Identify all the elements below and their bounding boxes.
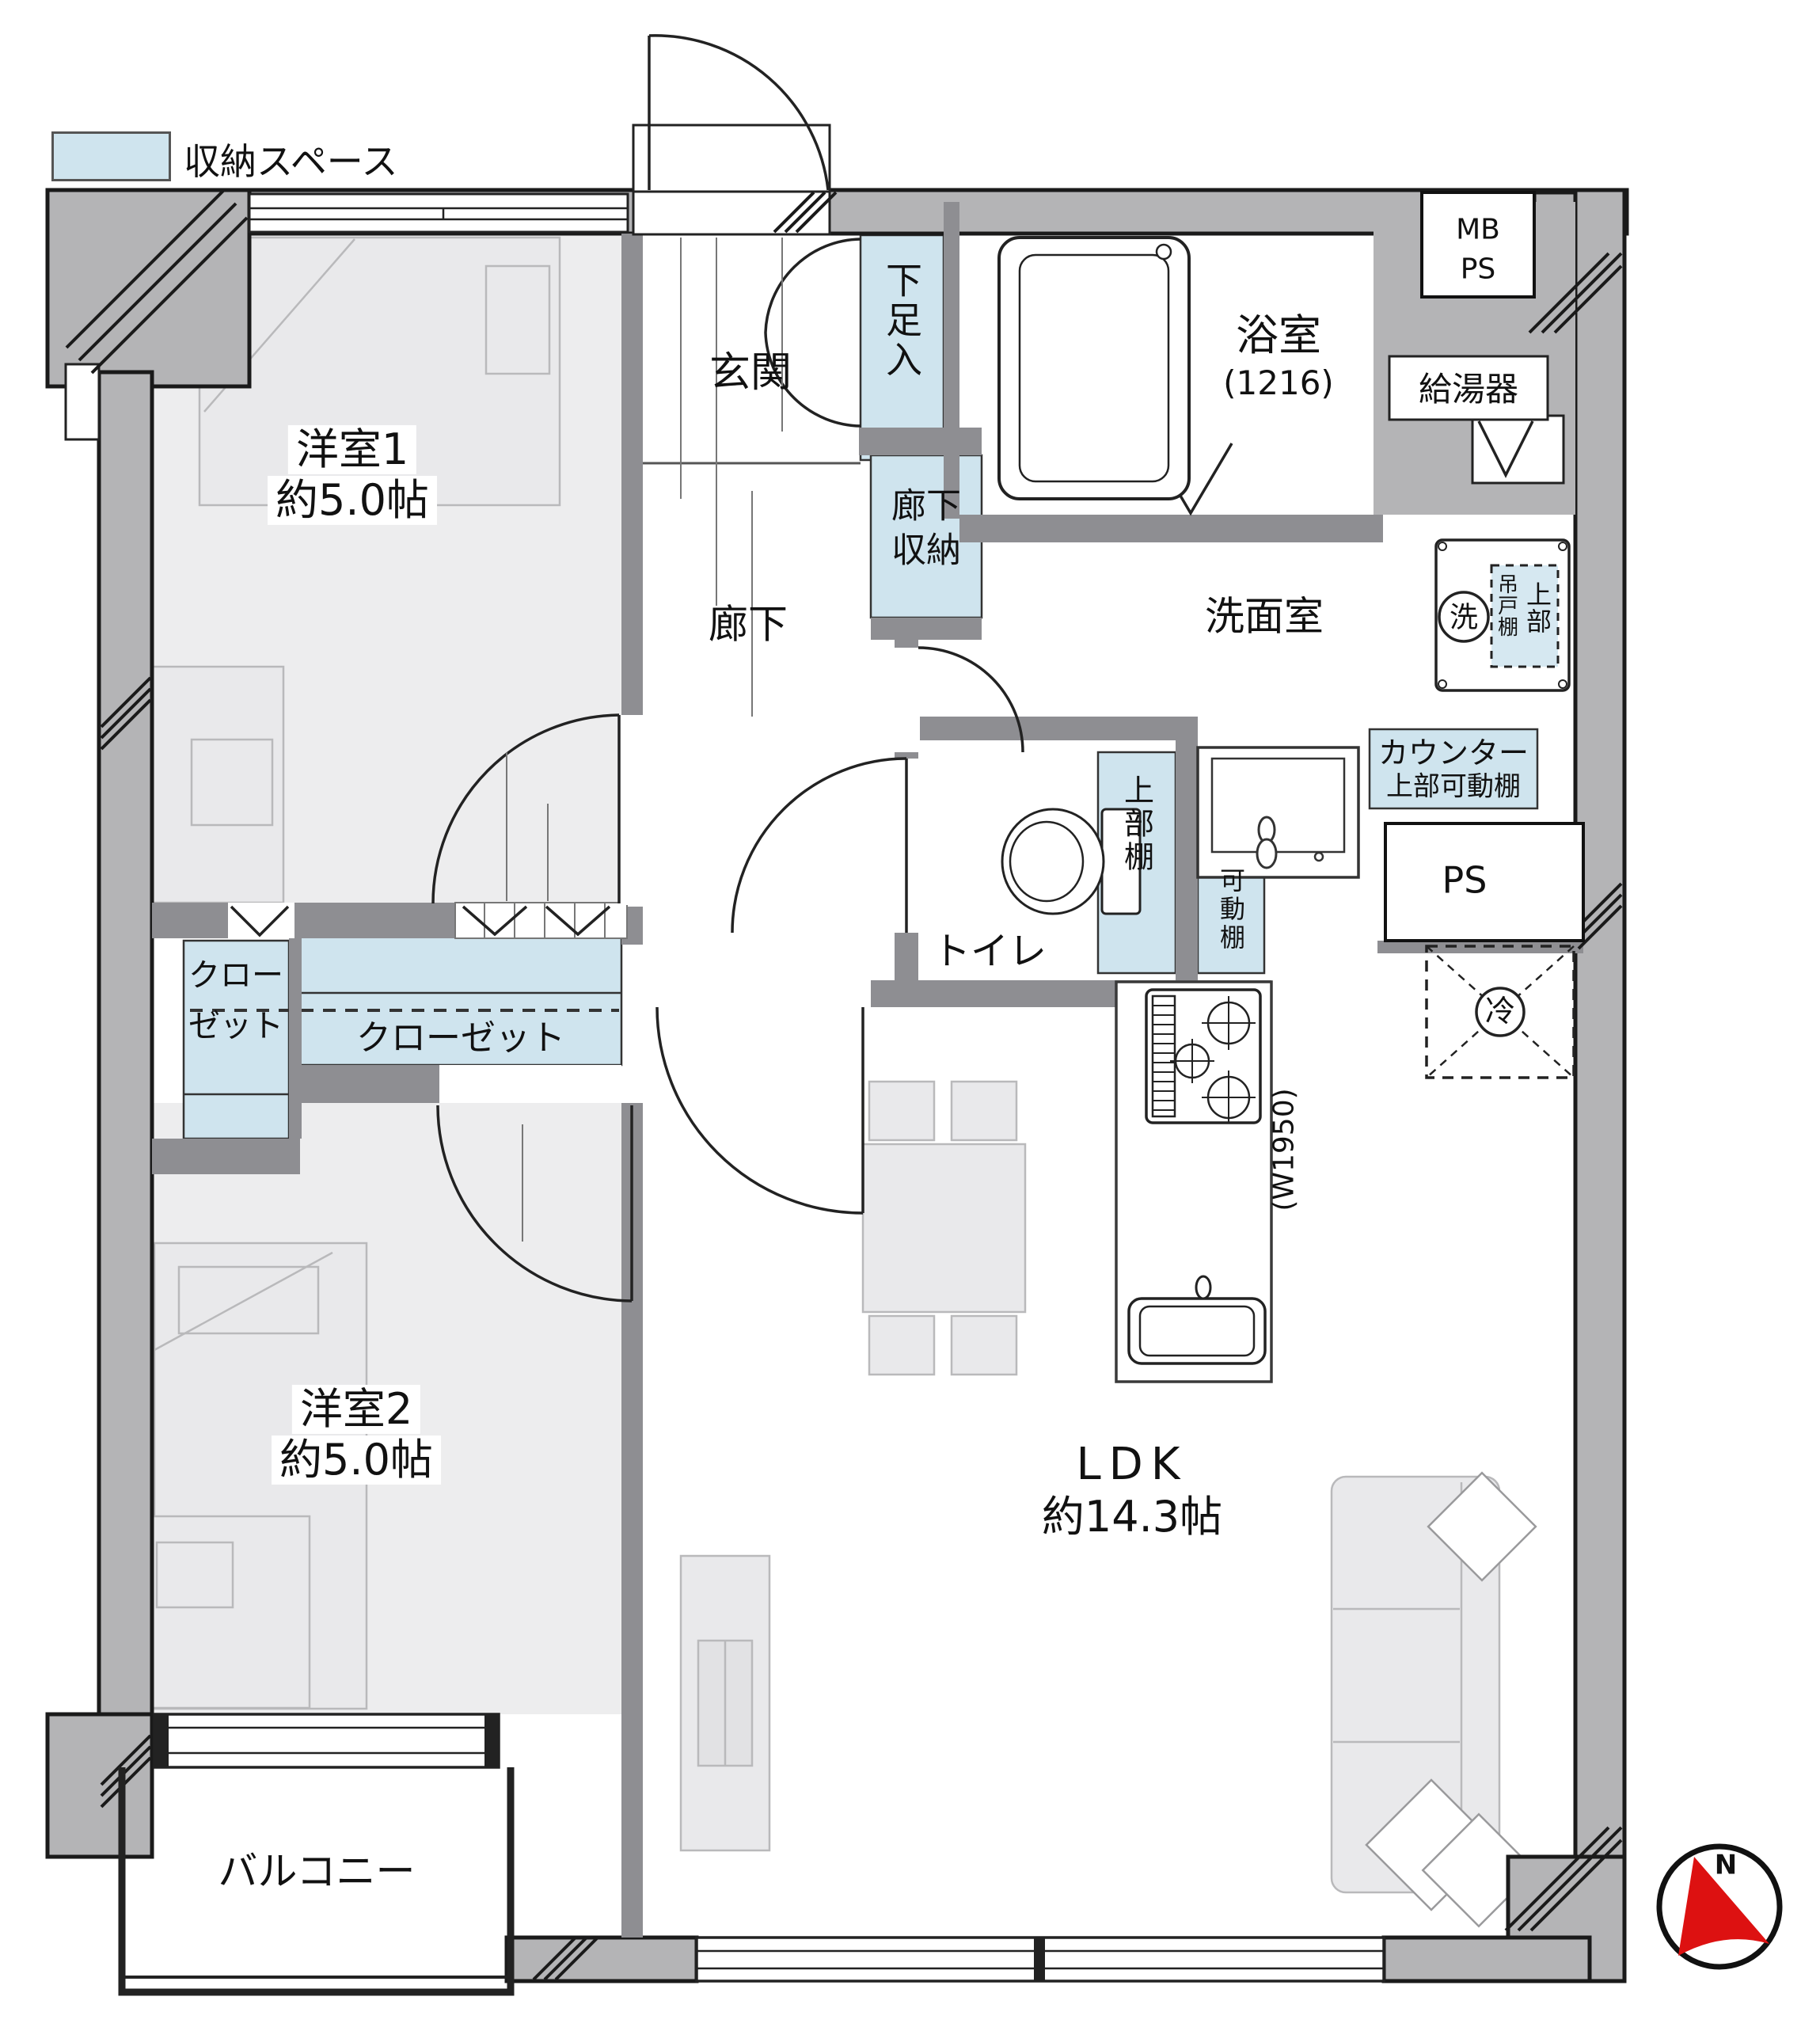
room-label-balcony: バルコニー [218,1849,416,1895]
room-label-corridor: 廊下 [709,602,788,648]
fixture-label-pipe-shaft: PS [1442,860,1488,902]
storage-label-closet-small-2: ゼット [188,1008,283,1044]
vanity [1198,747,1358,877]
storage-label-closet-small-1: クロー [188,957,283,994]
storage-label-toilet-upper-shelf: 上部棚 [1115,774,1159,874]
kitchen-counter [1116,982,1271,1382]
legend-swatch [51,131,171,181]
room-label-bedroom2: 洋室2 [292,1385,420,1434]
room-label-bedroom1-area: 約5.0帖 [268,476,437,525]
storage-label-closet-large: クローゼット [356,1019,565,1059]
legend-label: 収納スペース [184,133,397,185]
storage-label-counter-shelf-2: 上部可動棚 [1386,771,1521,802]
tv-board [681,1556,769,1850]
floor-plan: 収納スペース 玄関 下足入 廊下 収納 浴室 (1216) MB PS 給湯器 … [0,0,1820,2027]
fixture-label-refrigerator: 冷 [1485,994,1515,1029]
room-label-bedroom2-area: 約5.0帖 [272,1436,441,1485]
storage-label-hanging-cabinet-1: 吊戸棚 [1492,573,1522,637]
room-label-toilet: トイレ [933,930,1047,973]
storage-label-movable-shelf: 可動棚 [1213,867,1249,953]
fixture-label-washer: 洗 [1450,601,1478,633]
fixture-label-water-heater: 給湯器 [1419,371,1518,409]
stove [1146,990,1260,1123]
room-label-ldk: LDK [1076,1439,1187,1490]
storage-label-hall-storage-2: 収納 [891,531,961,572]
storage-label-hall-storage-1: 廊下 [891,487,961,527]
storage-label-counter-shelf-1: カウンター [1378,736,1529,771]
fixture-label-kitchen-width: (W1950) [1267,1088,1300,1211]
storage-label-hanging-cabinet-2: 上部 [1519,581,1556,635]
bathtub [999,238,1189,499]
room-label-bathroom: 浴室 [1236,311,1321,360]
fixture-label-mbps: PS [1461,253,1496,285]
fixture-label-mb: MB [1456,213,1500,245]
room-label-bedroom1: 洋室1 [288,425,416,474]
room-label-entrance: 玄関 [709,350,792,397]
room-label-bathroom-size: (1216) [1223,364,1334,402]
storage-label-shoe-cabinet: 下足入 [876,261,928,380]
room-label-washroom: 洗面室 [1205,594,1324,640]
compass-north-label: N [1715,1850,1737,1881]
room-label-ldk-area: 約14.3帖 [1042,1493,1222,1542]
